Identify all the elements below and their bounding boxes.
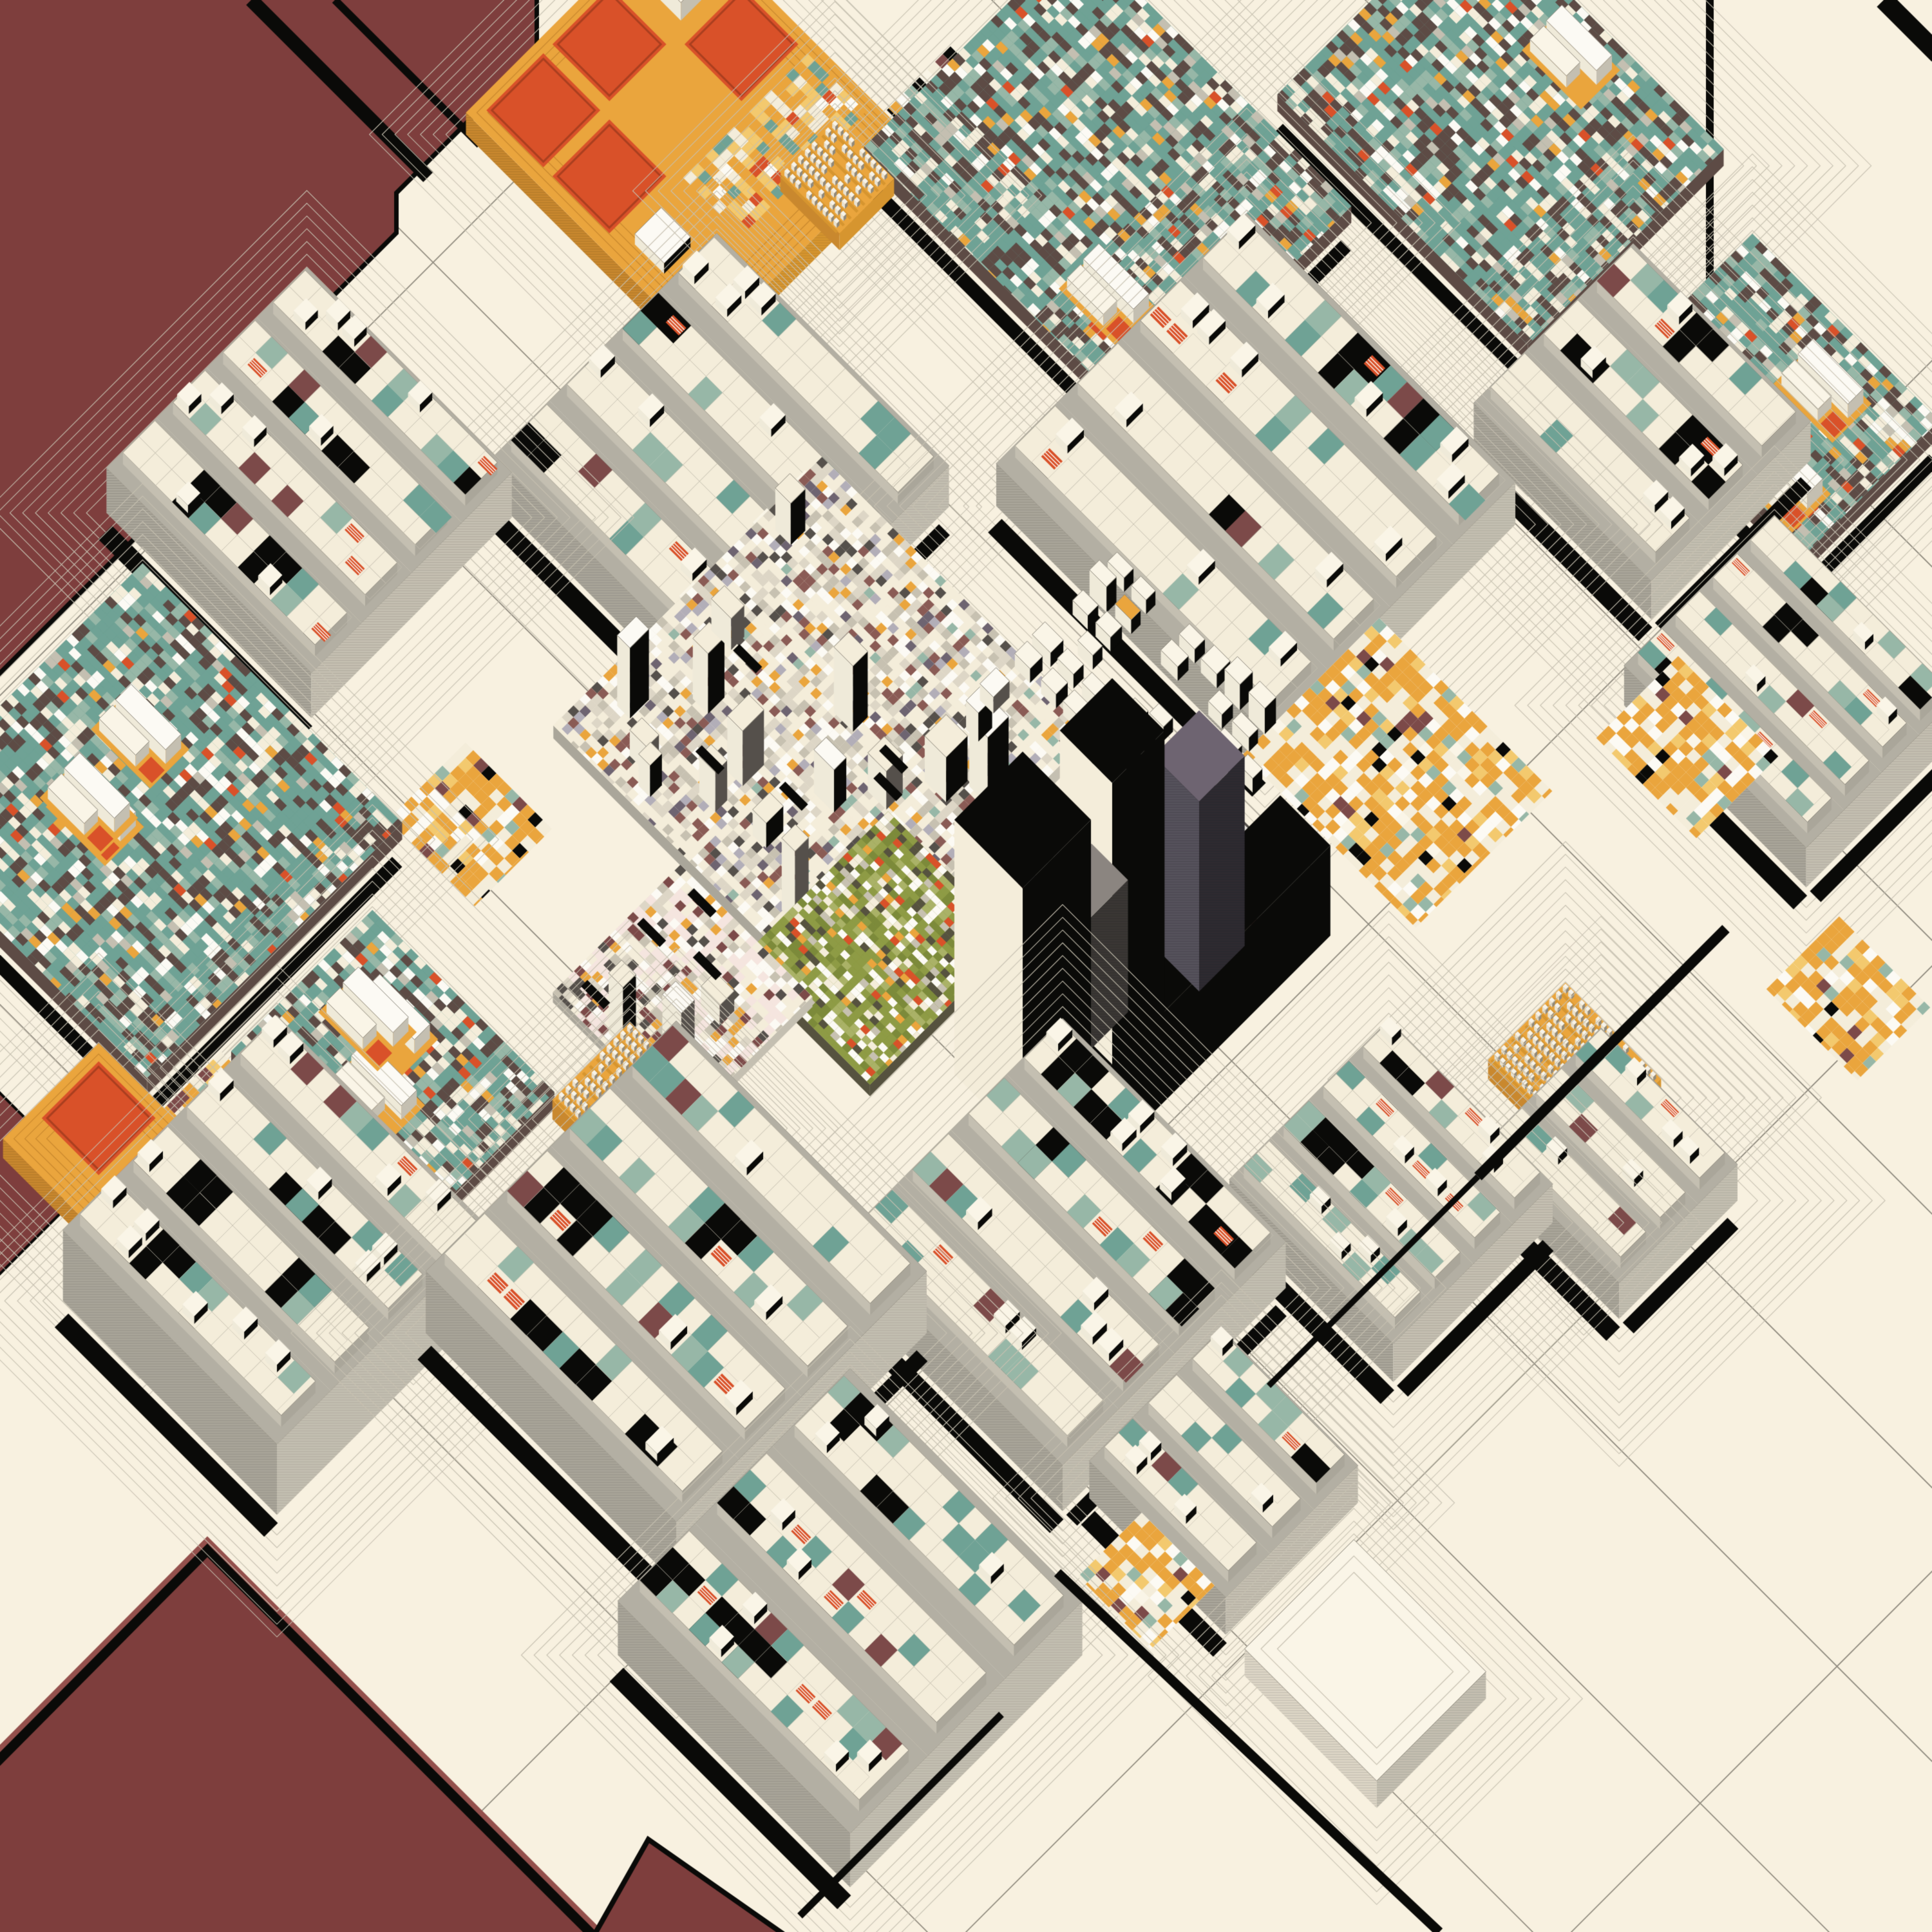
page: { "scene": {"width": 3000, "height": 300…	[0, 0, 1932, 1932]
city-canvas	[0, 0, 1932, 1932]
generative-isometric-city	[0, 0, 1932, 1932]
